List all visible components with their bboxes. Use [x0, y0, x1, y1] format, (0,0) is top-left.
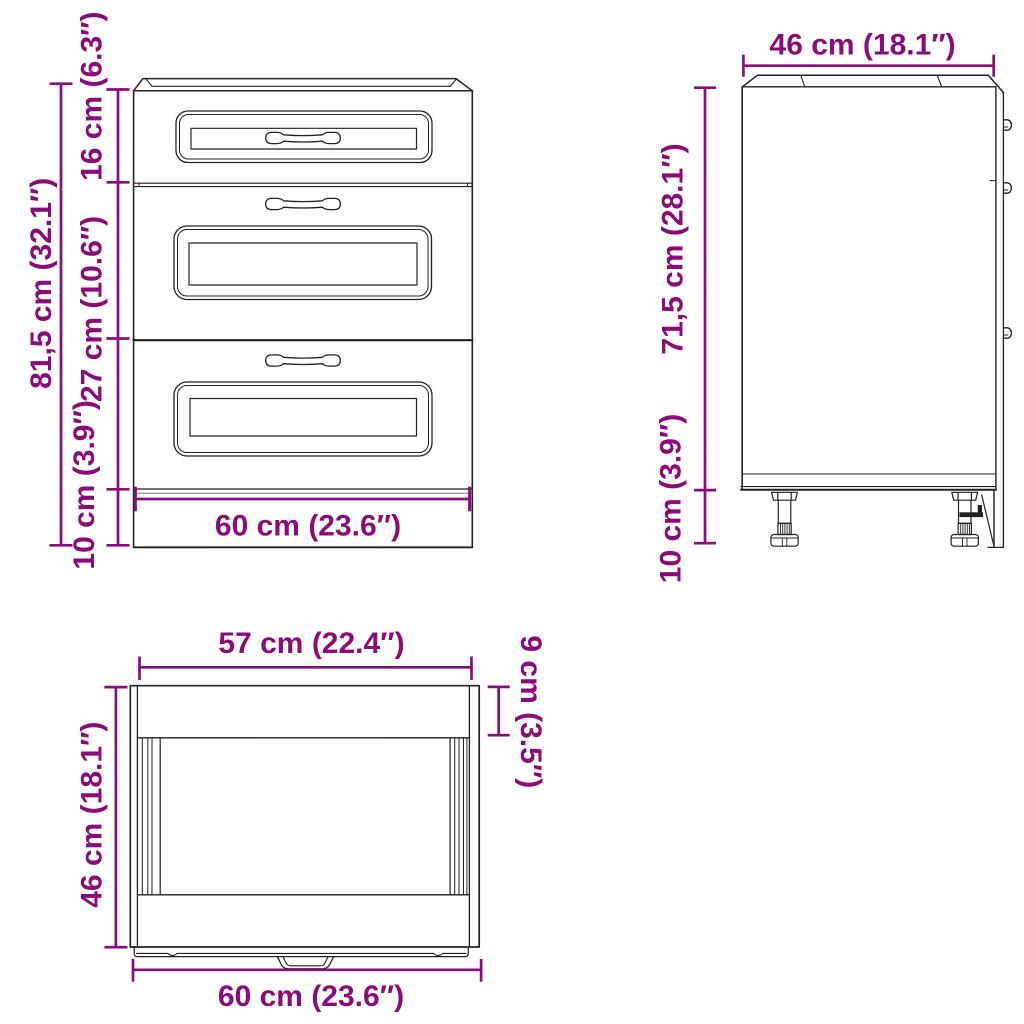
svg-text:71,5 cm (28.1″): 71,5 cm (28.1″) — [657, 143, 690, 354]
svg-text:57 cm (22.4″): 57 cm (22.4″) — [218, 627, 404, 660]
svg-text:10 cm (3.9″): 10 cm (3.9″) — [68, 400, 101, 569]
svg-text:10 cm (3.9″): 10 cm (3.9″) — [655, 414, 688, 583]
svg-text:27 cm (10.6″): 27 cm (10.6″) — [76, 216, 109, 402]
svg-text:60 cm (23.6″): 60 cm (23.6″) — [215, 510, 401, 543]
svg-text:16 cm (6.3″): 16 cm (6.3″) — [76, 11, 109, 180]
svg-text:9 cm (3.5″): 9 cm (3.5″) — [514, 635, 547, 788]
svg-text:60 cm (23.6″): 60 cm (23.6″) — [218, 980, 404, 1013]
svg-text:46 cm (18.1″): 46 cm (18.1″) — [770, 28, 956, 61]
svg-text:46 cm (18.1″): 46 cm (18.1″) — [76, 722, 109, 908]
svg-text:81,5 cm (32.1″): 81,5 cm (32.1″) — [25, 178, 58, 389]
